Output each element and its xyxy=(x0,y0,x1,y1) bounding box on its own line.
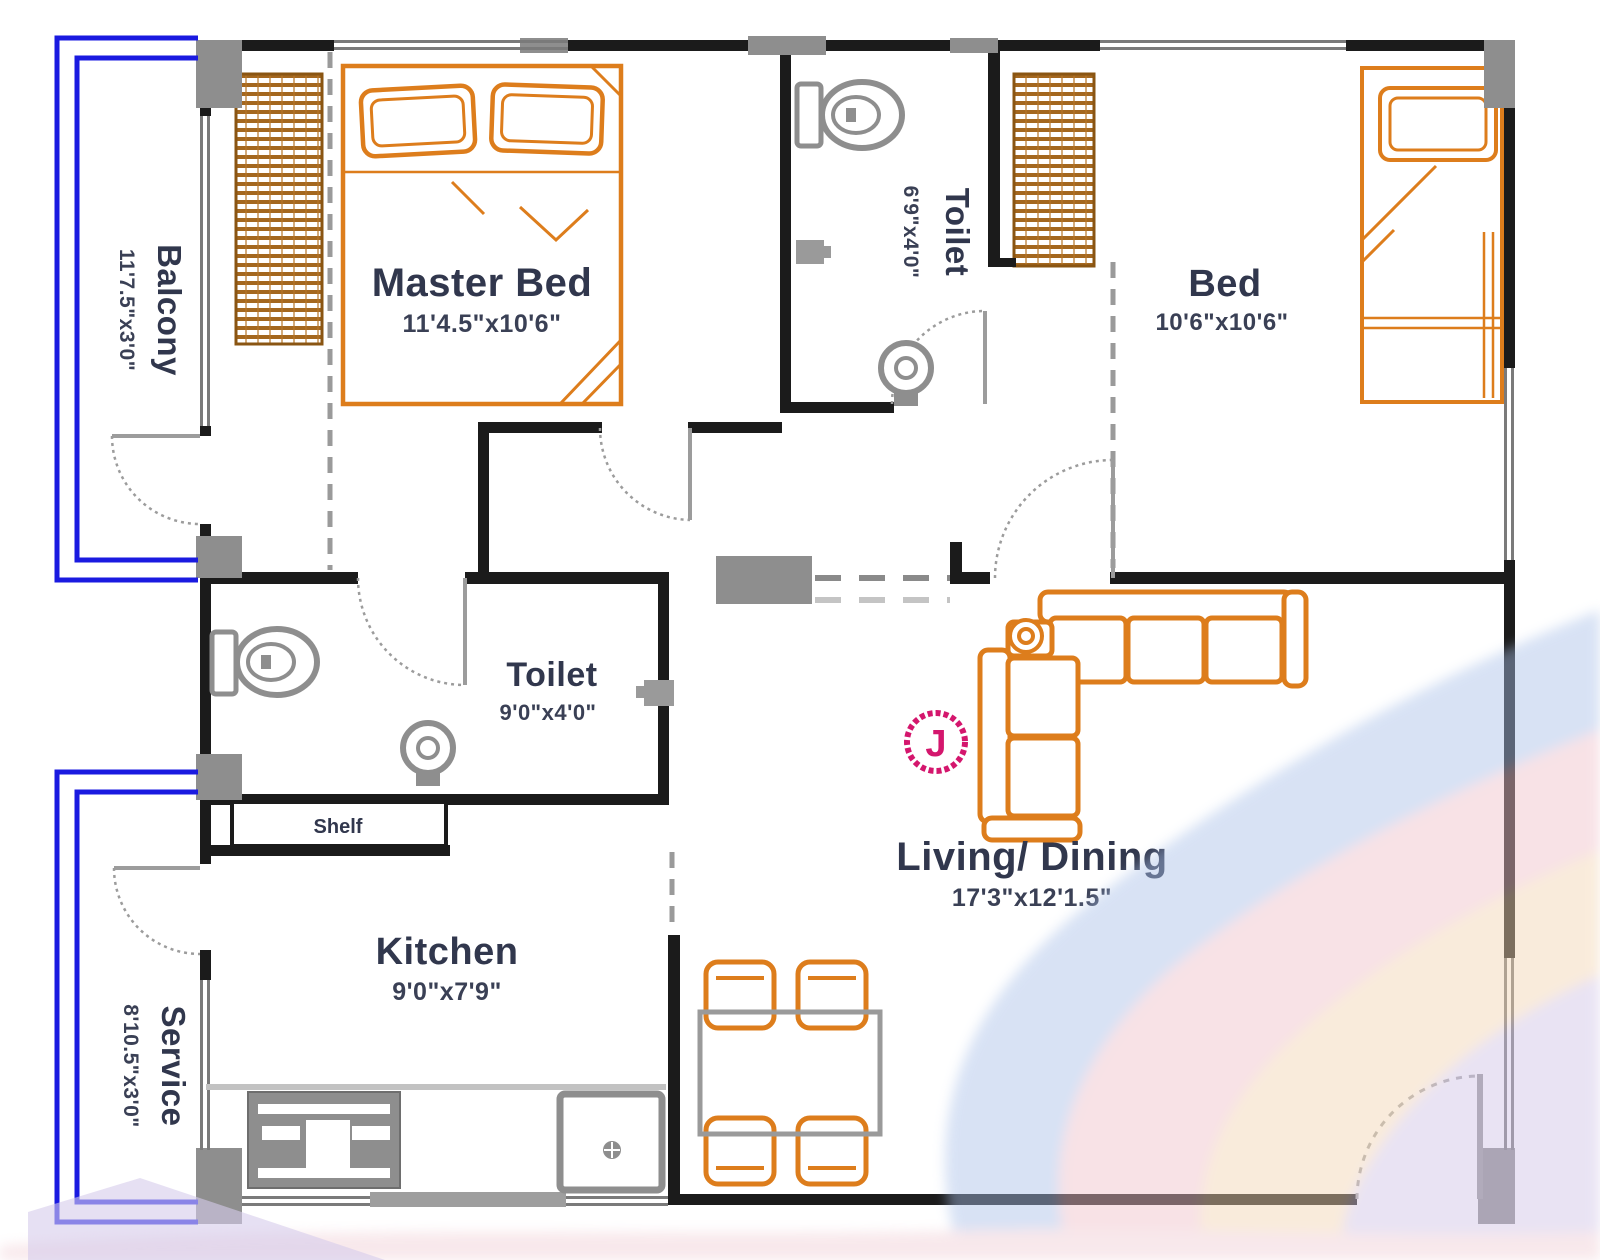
dim-kitchen: 9'0"x7'9" xyxy=(392,978,502,1006)
label-toilet-top: Toilet xyxy=(939,188,976,277)
wardrobe-bedroom-icon xyxy=(1014,74,1094,266)
label-living-dining: Living/ Dining xyxy=(896,835,1167,879)
side-table-icon xyxy=(1010,620,1042,652)
label-balcony: Balcony xyxy=(151,244,188,376)
dim-toilet-top: 6'9"x4'0" xyxy=(899,186,922,279)
wc-top-icon xyxy=(797,82,902,148)
dim-balcony: 11'7.5"x3'0" xyxy=(115,249,138,371)
label-service: Service xyxy=(155,1006,192,1127)
label-shelf: Shelf xyxy=(314,816,363,838)
sink-icon xyxy=(560,1094,662,1190)
wc-mid-icon xyxy=(212,629,317,695)
single-bed-icon xyxy=(1362,68,1502,402)
label-master-bed: Master Bed xyxy=(372,261,593,305)
junction-marker: J xyxy=(907,713,965,771)
dim-toilet-mid: 9'0"x4'0" xyxy=(499,700,596,725)
wardrobe-master-icon xyxy=(236,74,322,344)
label-kitchen: Kitchen xyxy=(376,931,519,973)
hallway-column xyxy=(716,556,812,604)
stove-icon xyxy=(248,1092,400,1188)
dim-master-bed: 11'4.5"x10'6" xyxy=(403,310,562,338)
label-bed: Bed xyxy=(1188,263,1261,305)
kitchen-counter xyxy=(206,1084,666,1090)
floorplan-drawing: J Master Bed 11'4.5"x10'6" Toilet 6'9"x4… xyxy=(0,0,1600,1260)
junction-marker-label: J xyxy=(925,723,946,765)
floorplan-page: J Master Bed 11'4.5"x10'6" Toilet 6'9"x4… xyxy=(0,0,1600,1260)
master-bed-icon xyxy=(343,66,621,404)
dim-bed: 10'6"x10'6" xyxy=(1155,309,1288,336)
label-toilet-mid: Toilet xyxy=(506,656,597,694)
dim-service: 8'10.5"x3'0" xyxy=(119,1004,142,1128)
